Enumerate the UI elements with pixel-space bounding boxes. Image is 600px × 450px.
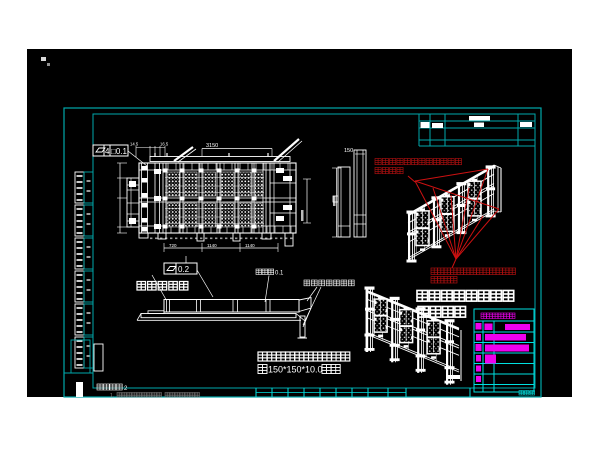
svg-text:0.1: 0.1 <box>275 271 284 277</box>
svg-text:150: 150 <box>344 148 353 154</box>
svg-text:□0.1: □0.1 <box>111 147 128 156</box>
svg-text:1140: 1140 <box>245 243 255 248</box>
svg-text:1.: 1. <box>110 393 114 399</box>
svg-text:14.5: 14.5 <box>130 142 139 147</box>
svg-text:720: 720 <box>169 243 177 248</box>
svg-text:3150: 3150 <box>206 143 218 149</box>
svg-text:1140: 1140 <box>207 243 217 248</box>
svg-text:150*150*10.0: 150*150*10.0 <box>268 365 323 375</box>
svg-text:0.2: 0.2 <box>178 265 190 274</box>
svg-text:16.5: 16.5 <box>160 142 169 147</box>
svg-text:4: 4 <box>105 147 110 156</box>
